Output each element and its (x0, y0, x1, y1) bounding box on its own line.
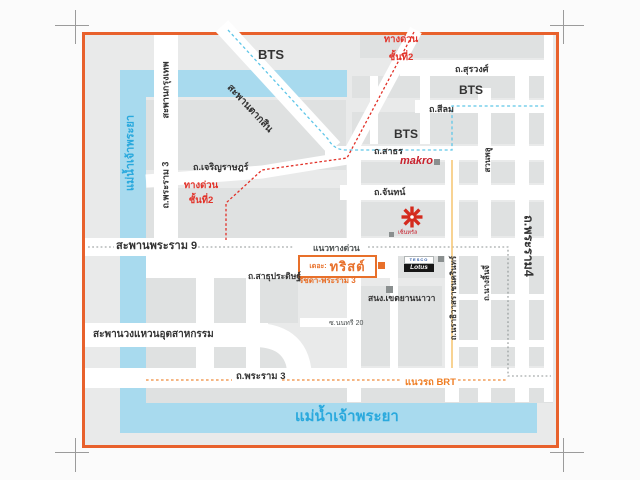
road-label-sathupradit: ถ.สาธุประดิษฐ์ (248, 272, 301, 281)
crop-mark (75, 438, 76, 472)
road-label-surawong: ถ.สุรวงศ์ (455, 65, 488, 74)
road-sathorn (325, 146, 553, 160)
road-chan (340, 185, 553, 200)
city-block (459, 347, 553, 366)
expressway-label-left: ทางด่วน ชั้นที่2 (179, 181, 223, 205)
road-minor-horizontal (459, 340, 553, 347)
expressway-label-line2: ชั้นที่2 (179, 196, 223, 206)
lotus-marker (438, 256, 444, 262)
road-label-industrial-ring: สะพานวงแหวนอุตสาหกรรม (93, 330, 214, 340)
lotus-logo: TESCO Lotus (404, 256, 434, 272)
road-label-nang-linchi: ถ.นางลิ้นจี่ (483, 265, 491, 301)
expressway-guide-label: แนวทางด่วน (313, 244, 360, 253)
river-label-left: แม่น้ำเจ้าพระยา (126, 115, 137, 191)
lotus-logo-text: Lotus (404, 264, 434, 272)
crop-mark (55, 452, 89, 453)
crop-mark (55, 25, 89, 26)
crop-mark (550, 452, 584, 453)
central-marker (389, 232, 394, 237)
makro-logo: makro (400, 156, 433, 167)
road-label-chan: ถ.จันทน์ (374, 188, 405, 197)
city-block (459, 300, 553, 340)
road-label-suan-phlu: สวนพลู (484, 147, 492, 172)
river-label-bottom: แม่น้ำเจ้าพระยา (295, 409, 399, 424)
venue-box: เดอะ: ทริสต์ (298, 255, 377, 278)
crop-mark (563, 10, 564, 44)
soi-nonsi20-label: ซ.นนทรี 20 (329, 320, 363, 327)
district-office-marker (386, 286, 393, 293)
map-page: BTS BTS BTS ทางด่วน ชั้นที่2 ทางด่วน ชั้… (0, 0, 640, 480)
expressway-label-line2: ชั้นที่2 (378, 53, 424, 63)
road-label-silom: ถ.สีลม (429, 105, 454, 114)
venue-marker (378, 262, 385, 269)
district-office-label: สนง.เขตยานนาวา (368, 294, 435, 303)
crop-mark (550, 25, 584, 26)
road-minor-vertical (390, 252, 398, 368)
road-label-rama3-bottom: ถ.พระราม 3 (236, 372, 285, 382)
road-minor-horizontal (459, 294, 553, 300)
road-label-rama4: ถ.พระราม4 (522, 215, 535, 277)
central-logo-caption: เซ็นทรัล (398, 231, 417, 237)
road-minor-vertical (370, 76, 378, 144)
venue-name: ทริสต์ (330, 256, 366, 277)
venue-prefix: เดอะ: (309, 261, 326, 272)
road-label-narathiwas: ถ.นราธิวาสราชนครินทร์ (450, 256, 458, 340)
bts-label-top: BTS (258, 48, 284, 61)
expressway-label-line1: ทางด่วน (378, 35, 424, 45)
city-block (459, 252, 553, 294)
tesco-logo-text: TESCO (404, 256, 434, 264)
brt-guide-label: แนวรถ BRT (405, 378, 456, 388)
bts-label-surawong: BTS (459, 84, 483, 96)
expressway-label-line1: ทางด่วน (179, 181, 223, 191)
expressway-label-topright: ทางด่วน ชั้นที่2 (378, 35, 424, 62)
road-label-sathorn: ถ.สาธร (374, 147, 403, 156)
bts-label-silom: BTS (394, 128, 418, 140)
road-label-charoen-rat: ถ.เจริญราษฎร์ (193, 163, 249, 172)
road-rama3 (85, 368, 553, 388)
road-label-rama3-left: ถ.พระราม 3 (162, 162, 171, 209)
city-block (146, 347, 286, 368)
crop-mark (563, 438, 564, 472)
crop-mark (75, 10, 76, 44)
road-label-krungthep-bridge: สะพานกรุงเทพ (162, 61, 171, 118)
makro-marker (434, 159, 440, 165)
road-label-rama9-bridge: สะพานพระราม 9 (116, 241, 197, 252)
road-label-ratchada-rama3: รัชดา-พระราม 3 (299, 277, 356, 285)
